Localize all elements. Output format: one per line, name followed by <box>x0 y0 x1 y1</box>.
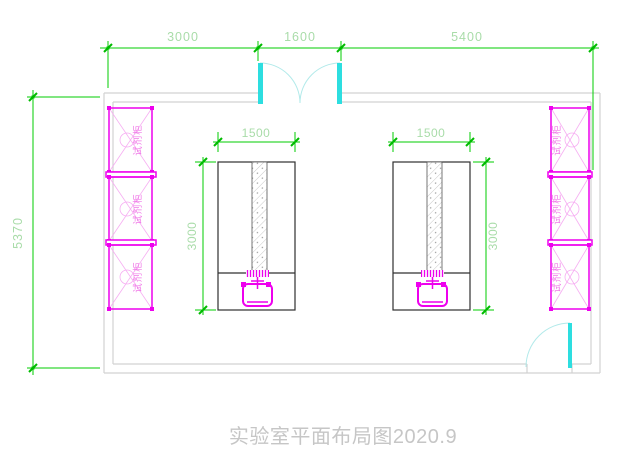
dim-label-5400: 5400 <box>451 30 483 44</box>
dimension-bench-right-width: 1500 <box>388 126 475 152</box>
dimension-top: 3000 1600 5400 <box>100 30 599 170</box>
dim-label-1500: 1500 <box>242 126 271 140</box>
dim-label-1500: 1500 <box>417 126 446 140</box>
cabinet-box: 试剂柜 <box>549 175 591 243</box>
door-leaf-right <box>337 63 342 104</box>
cabinet-box: 试剂柜 <box>107 106 154 174</box>
lab-bench-right: 1500 3000 <box>388 126 500 315</box>
cabinet-box: 试剂柜 <box>549 243 591 311</box>
lab-bench-left: 1500 3000 <box>185 126 300 315</box>
door-leaf <box>568 323 572 368</box>
reagent-cabinets-right: 试剂柜 试剂柜 试剂柜 <box>548 106 592 311</box>
reagent-shelf-strip <box>252 162 267 273</box>
dim-label-3000-right: 3000 <box>486 222 500 251</box>
cabinet-label: 试剂柜 <box>132 261 144 293</box>
dimension-left: 5370 <box>11 90 100 375</box>
dimension-bench-left-depth: 3000 <box>185 157 216 315</box>
room-walls <box>104 93 600 373</box>
single-door-bottom-right <box>526 323 572 368</box>
dimension-bench-left-width: 1500 <box>213 126 300 152</box>
cabinet-label: 试剂柜 <box>551 124 563 156</box>
cabinet-box: 试剂柜 <box>107 243 154 311</box>
dim-label-5370: 5370 <box>11 217 25 249</box>
cabinet-box: 试剂柜 <box>549 106 591 174</box>
cabinet-label: 试剂柜 <box>551 193 563 225</box>
dim-label-1600: 1600 <box>284 30 316 44</box>
drawing-title: 实验室平面布局图2020.9 <box>229 425 457 448</box>
cabinet-box: 试剂柜 <box>107 175 154 243</box>
dim-label-3000: 3000 <box>167 30 199 44</box>
reagent-shelf-strip <box>427 162 442 273</box>
dimension-bench-right-depth: 3000 <box>473 157 500 315</box>
cabinet-label: 试剂柜 <box>132 124 144 156</box>
cabinet-label: 试剂柜 <box>132 193 144 225</box>
double-door-top <box>258 63 342 104</box>
door-leaf-left <box>258 63 263 104</box>
cad-floorplan-canvas: 3000 1600 5400 5370 <box>0 0 619 469</box>
floorplan-drawing: 3000 1600 5400 5370 <box>0 0 619 469</box>
dim-label-3000-left: 3000 <box>185 222 199 251</box>
cabinet-label: 试剂柜 <box>551 261 563 293</box>
